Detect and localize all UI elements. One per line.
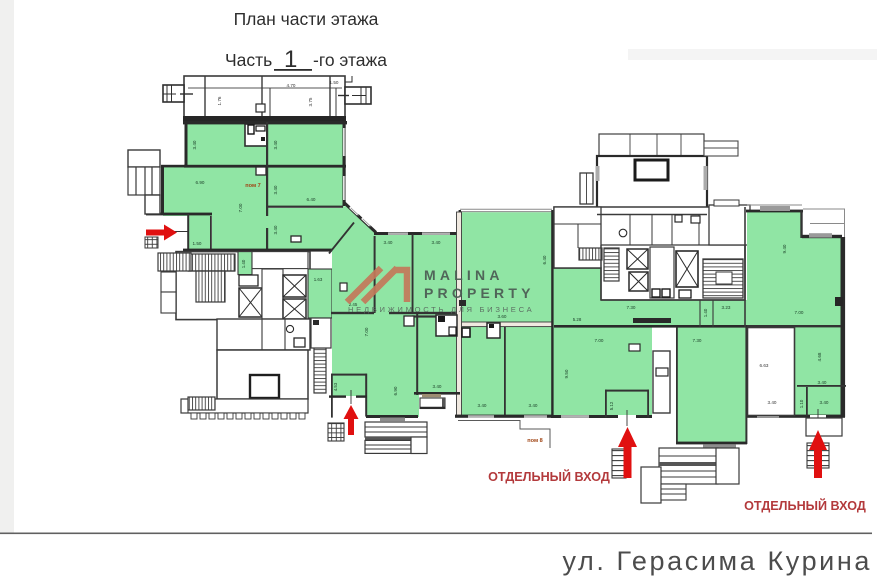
svg-text:ОТДЕЛЬНЫЙ ВХОД: ОТДЕЛЬНЫЙ ВХОД	[488, 469, 610, 484]
svg-text:7.00: 7.00	[238, 203, 243, 212]
svg-text:1.10: 1.10	[799, 399, 804, 408]
svg-text:4.53: 4.53	[333, 382, 338, 391]
svg-text:5.12: 5.12	[609, 401, 614, 410]
svg-text:3.75: 3.75	[308, 97, 313, 106]
svg-text:3.40: 3.40	[192, 140, 197, 149]
svg-text:3.40: 3.40	[273, 225, 278, 234]
svg-text:1.40: 1.40	[703, 308, 708, 317]
svg-text:3.40: 3.40	[818, 380, 827, 385]
svg-text:1.50: 1.50	[330, 80, 339, 85]
svg-text:3.40: 3.40	[433, 384, 442, 389]
svg-text:3.60: 3.60	[498, 314, 507, 319]
svg-text:Часть: Часть	[225, 50, 272, 70]
svg-text:3.40: 3.40	[273, 185, 278, 194]
svg-text:3.40: 3.40	[768, 400, 777, 405]
svg-text:6.63: 6.63	[760, 363, 769, 368]
svg-text:7.00: 7.00	[364, 327, 369, 336]
svg-text:1.63: 1.63	[314, 277, 323, 282]
svg-text:4.68: 4.68	[817, 352, 822, 361]
svg-text:6.90: 6.90	[196, 180, 205, 185]
svg-text:3.40: 3.40	[478, 403, 487, 408]
svg-text:MALINA: MALINA	[424, 267, 504, 283]
svg-text:пом 7: пом 7	[245, 183, 261, 189]
svg-text:НЕДВИЖИМОСТЬ ДЛЯ БИЗНЕСА: НЕДВИЖИМОСТЬ ДЛЯ БИЗНЕСА	[348, 305, 534, 314]
svg-text:6.90: 6.90	[393, 386, 398, 395]
svg-text:ОТДЕЛЬНЫЙ ВХОД: ОТДЕЛЬНЫЙ ВХОД	[744, 498, 866, 513]
svg-text:План части этажа: План части этажа	[234, 9, 379, 29]
svg-text:3.40: 3.40	[529, 403, 538, 408]
svg-text:6.40: 6.40	[307, 197, 316, 202]
svg-text:7.00: 7.00	[595, 338, 604, 343]
svg-text:5.28: 5.28	[573, 317, 582, 322]
svg-text:7.30: 7.30	[693, 338, 702, 343]
svg-text:1.76: 1.76	[217, 96, 222, 105]
svg-text:3.40: 3.40	[273, 140, 278, 149]
svg-text:3.23: 3.23	[722, 305, 731, 310]
svg-text:7.30: 7.30	[627, 305, 636, 310]
svg-text:3.40: 3.40	[432, 240, 441, 245]
svg-text:1.40: 1.40	[241, 259, 246, 268]
svg-text:ул. Герасима Курина: ул. Герасима Курина	[562, 546, 872, 576]
svg-text:PROPERTY: PROPERTY	[424, 285, 535, 301]
svg-text:9.50: 9.50	[564, 369, 569, 378]
svg-text:4.70: 4.70	[287, 83, 296, 88]
svg-text:3.40: 3.40	[820, 400, 829, 405]
svg-text:1.50: 1.50	[193, 241, 202, 246]
svg-text:1: 1	[284, 46, 297, 73]
svg-text:7.00: 7.00	[795, 310, 804, 315]
svg-text:6.40: 6.40	[542, 255, 547, 264]
svg-text:-го этажа: -го этажа	[313, 50, 387, 70]
svg-text:пом 8: пом 8	[527, 438, 543, 444]
svg-text:9.40: 9.40	[782, 244, 787, 253]
svg-text:3.40: 3.40	[384, 240, 393, 245]
